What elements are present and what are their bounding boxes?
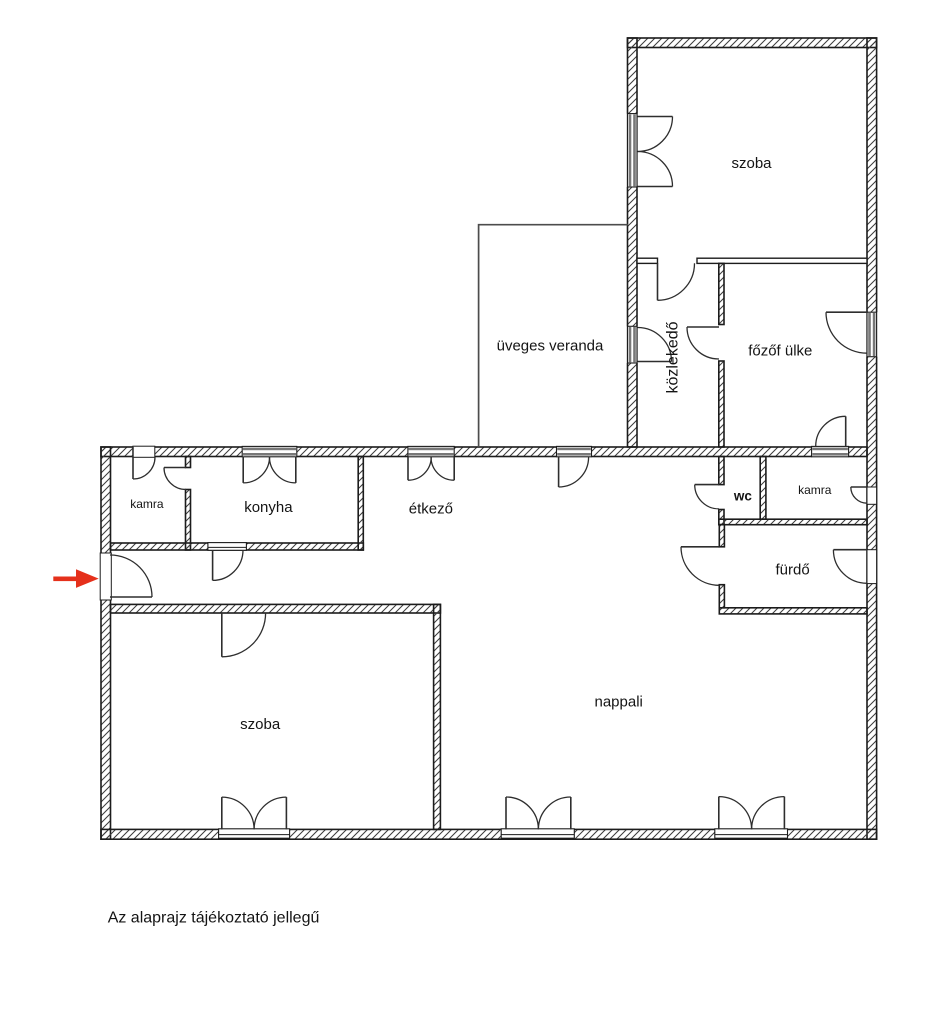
- svg-text:étkező: étkező: [409, 501, 453, 518]
- svg-text:közlekedő: közlekedő: [665, 321, 682, 393]
- svg-text:konyha: konyha: [244, 499, 293, 516]
- svg-text:wc: wc: [733, 489, 753, 504]
- svg-text:kamra: kamra: [798, 483, 832, 497]
- svg-text:szoba: szoba: [240, 716, 281, 733]
- svg-text:üveges veranda: üveges veranda: [497, 337, 604, 354]
- svg-text:nappali: nappali: [595, 693, 643, 710]
- svg-text:szoba: szoba: [731, 155, 772, 172]
- svg-text:fürdő: fürdő: [775, 561, 809, 578]
- svg-text:főzőf ülke: főzőf ülke: [748, 342, 812, 359]
- svg-text:Az alaprajz tájékoztató jelleg: Az alaprajz tájékoztató jellegű: [108, 910, 320, 927]
- svg-text:kamra: kamra: [130, 497, 164, 511]
